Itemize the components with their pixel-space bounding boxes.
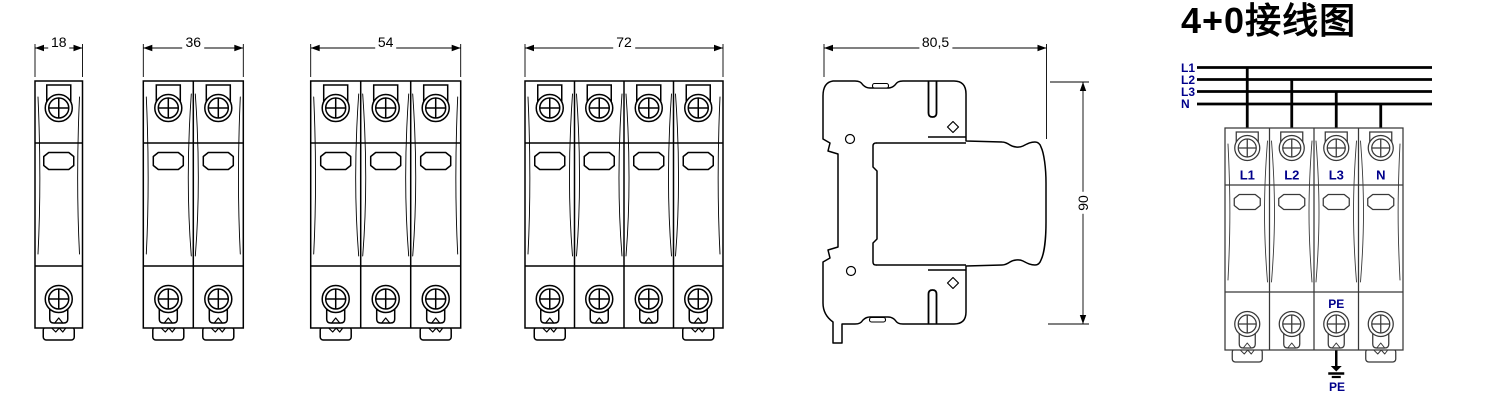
wiring-device-4pole — [1225, 128, 1403, 362]
side-view — [823, 81, 1046, 343]
dim-label-2pole-width: 36 — [183, 35, 205, 49]
technical-drawing-sheet: 18 36 54 72 80,5 90 4+0接线图 L1 L2 L3 N L1… — [0, 0, 1500, 400]
dim-label-1pole-width: 18 — [48, 35, 70, 49]
dim-label-side-height: 90 — [1076, 192, 1090, 214]
terminal-label-l3: L3 — [1329, 169, 1344, 182]
line-art-canvas — [0, 0, 1500, 400]
terminal-label-l1: L1 — [1240, 169, 1255, 182]
pe-label-earth: PE — [1329, 381, 1345, 393]
bus-label-l3: L3 — [1181, 86, 1195, 98]
front-view-2-pole — [143, 81, 243, 340]
terminal-label-n: N — [1376, 169, 1385, 182]
front-view-3-pole — [311, 81, 461, 340]
front-view-1-pole — [35, 81, 83, 340]
bus-label-n: N — [1181, 98, 1190, 110]
dim-label-side-width: 80,5 — [919, 35, 952, 49]
dim-label-3pole-width: 54 — [375, 35, 397, 49]
terminal-label-l2: L2 — [1284, 169, 1299, 182]
front-view-4-pole — [525, 81, 723, 340]
wiring-diagram-title: 4+0接线图 — [1181, 3, 1356, 39]
dim-label-4pole-width: 72 — [613, 35, 635, 49]
pe-label-terminal: PE — [1328, 298, 1344, 310]
